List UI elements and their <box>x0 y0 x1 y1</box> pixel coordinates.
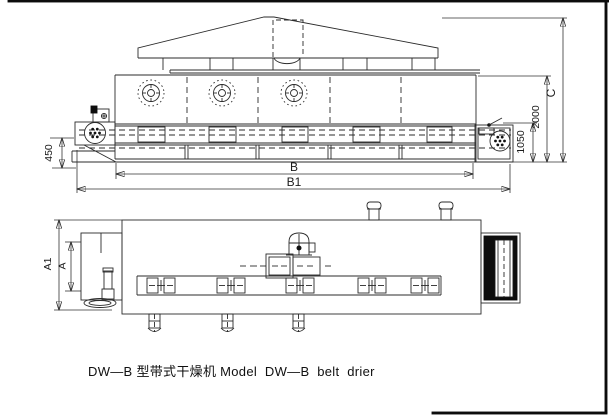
side-elevation-view: 450 B B1 1050 2000 <box>43 17 567 193</box>
dim-label-1050: 1050 <box>515 130 527 154</box>
dim-label-A1: A1 <box>42 257 54 270</box>
dim-label-B1: B1 <box>287 175 302 189</box>
plan-view: A1 A <box>42 202 520 332</box>
fan-flange-3 <box>281 80 307 106</box>
fan-flange-1 <box>138 80 164 106</box>
vent-pipe-2 <box>439 202 453 220</box>
dimension-A1: A1 <box>42 220 122 310</box>
discharge-end <box>481 233 520 303</box>
feed-end-pulley <box>72 106 116 162</box>
dim-label-B: B <box>290 160 298 174</box>
dim-label-C: C <box>544 88 558 97</box>
gearbox <box>240 254 331 278</box>
dimension-A: A <box>57 242 82 291</box>
plan-body-outline <box>122 220 481 314</box>
discharge-end-pulley <box>475 118 513 162</box>
drive-motor <box>286 233 315 255</box>
exhaust-duct-hidden <box>273 20 303 57</box>
access-door <box>427 127 452 142</box>
dim-label-450: 450 <box>43 144 55 162</box>
figure-caption: DW—B 型带式干燥机 Model DW—B belt drier <box>88 361 375 380</box>
drive-shaft <box>104 271 112 289</box>
fan-flange-2 <box>209 80 235 106</box>
drawing-page: 450 B B1 1050 2000 <box>0 0 609 417</box>
belt-band <box>79 124 511 143</box>
ceiling-plate <box>170 70 480 73</box>
belt-drier-drawing: 450 B B1 1050 2000 <box>0 0 609 417</box>
fan-dome-arc <box>274 58 300 64</box>
page-border <box>8 0 609 414</box>
drive-unit <box>81 233 122 308</box>
access-door <box>353 127 380 142</box>
vent-pipe-1 <box>367 202 381 220</box>
leader-line <box>489 118 502 125</box>
dim-label-A: A <box>57 262 69 269</box>
drying-chamber-body <box>115 75 476 162</box>
support-legs <box>148 314 305 332</box>
dimension-450: 450 <box>43 138 76 168</box>
dim-label-2000: 2000 <box>530 105 542 129</box>
roller-journals <box>147 278 439 293</box>
access-door <box>138 127 165 142</box>
exhaust-hood <box>138 17 438 70</box>
access-door <box>282 127 308 142</box>
access-door <box>209 127 236 142</box>
